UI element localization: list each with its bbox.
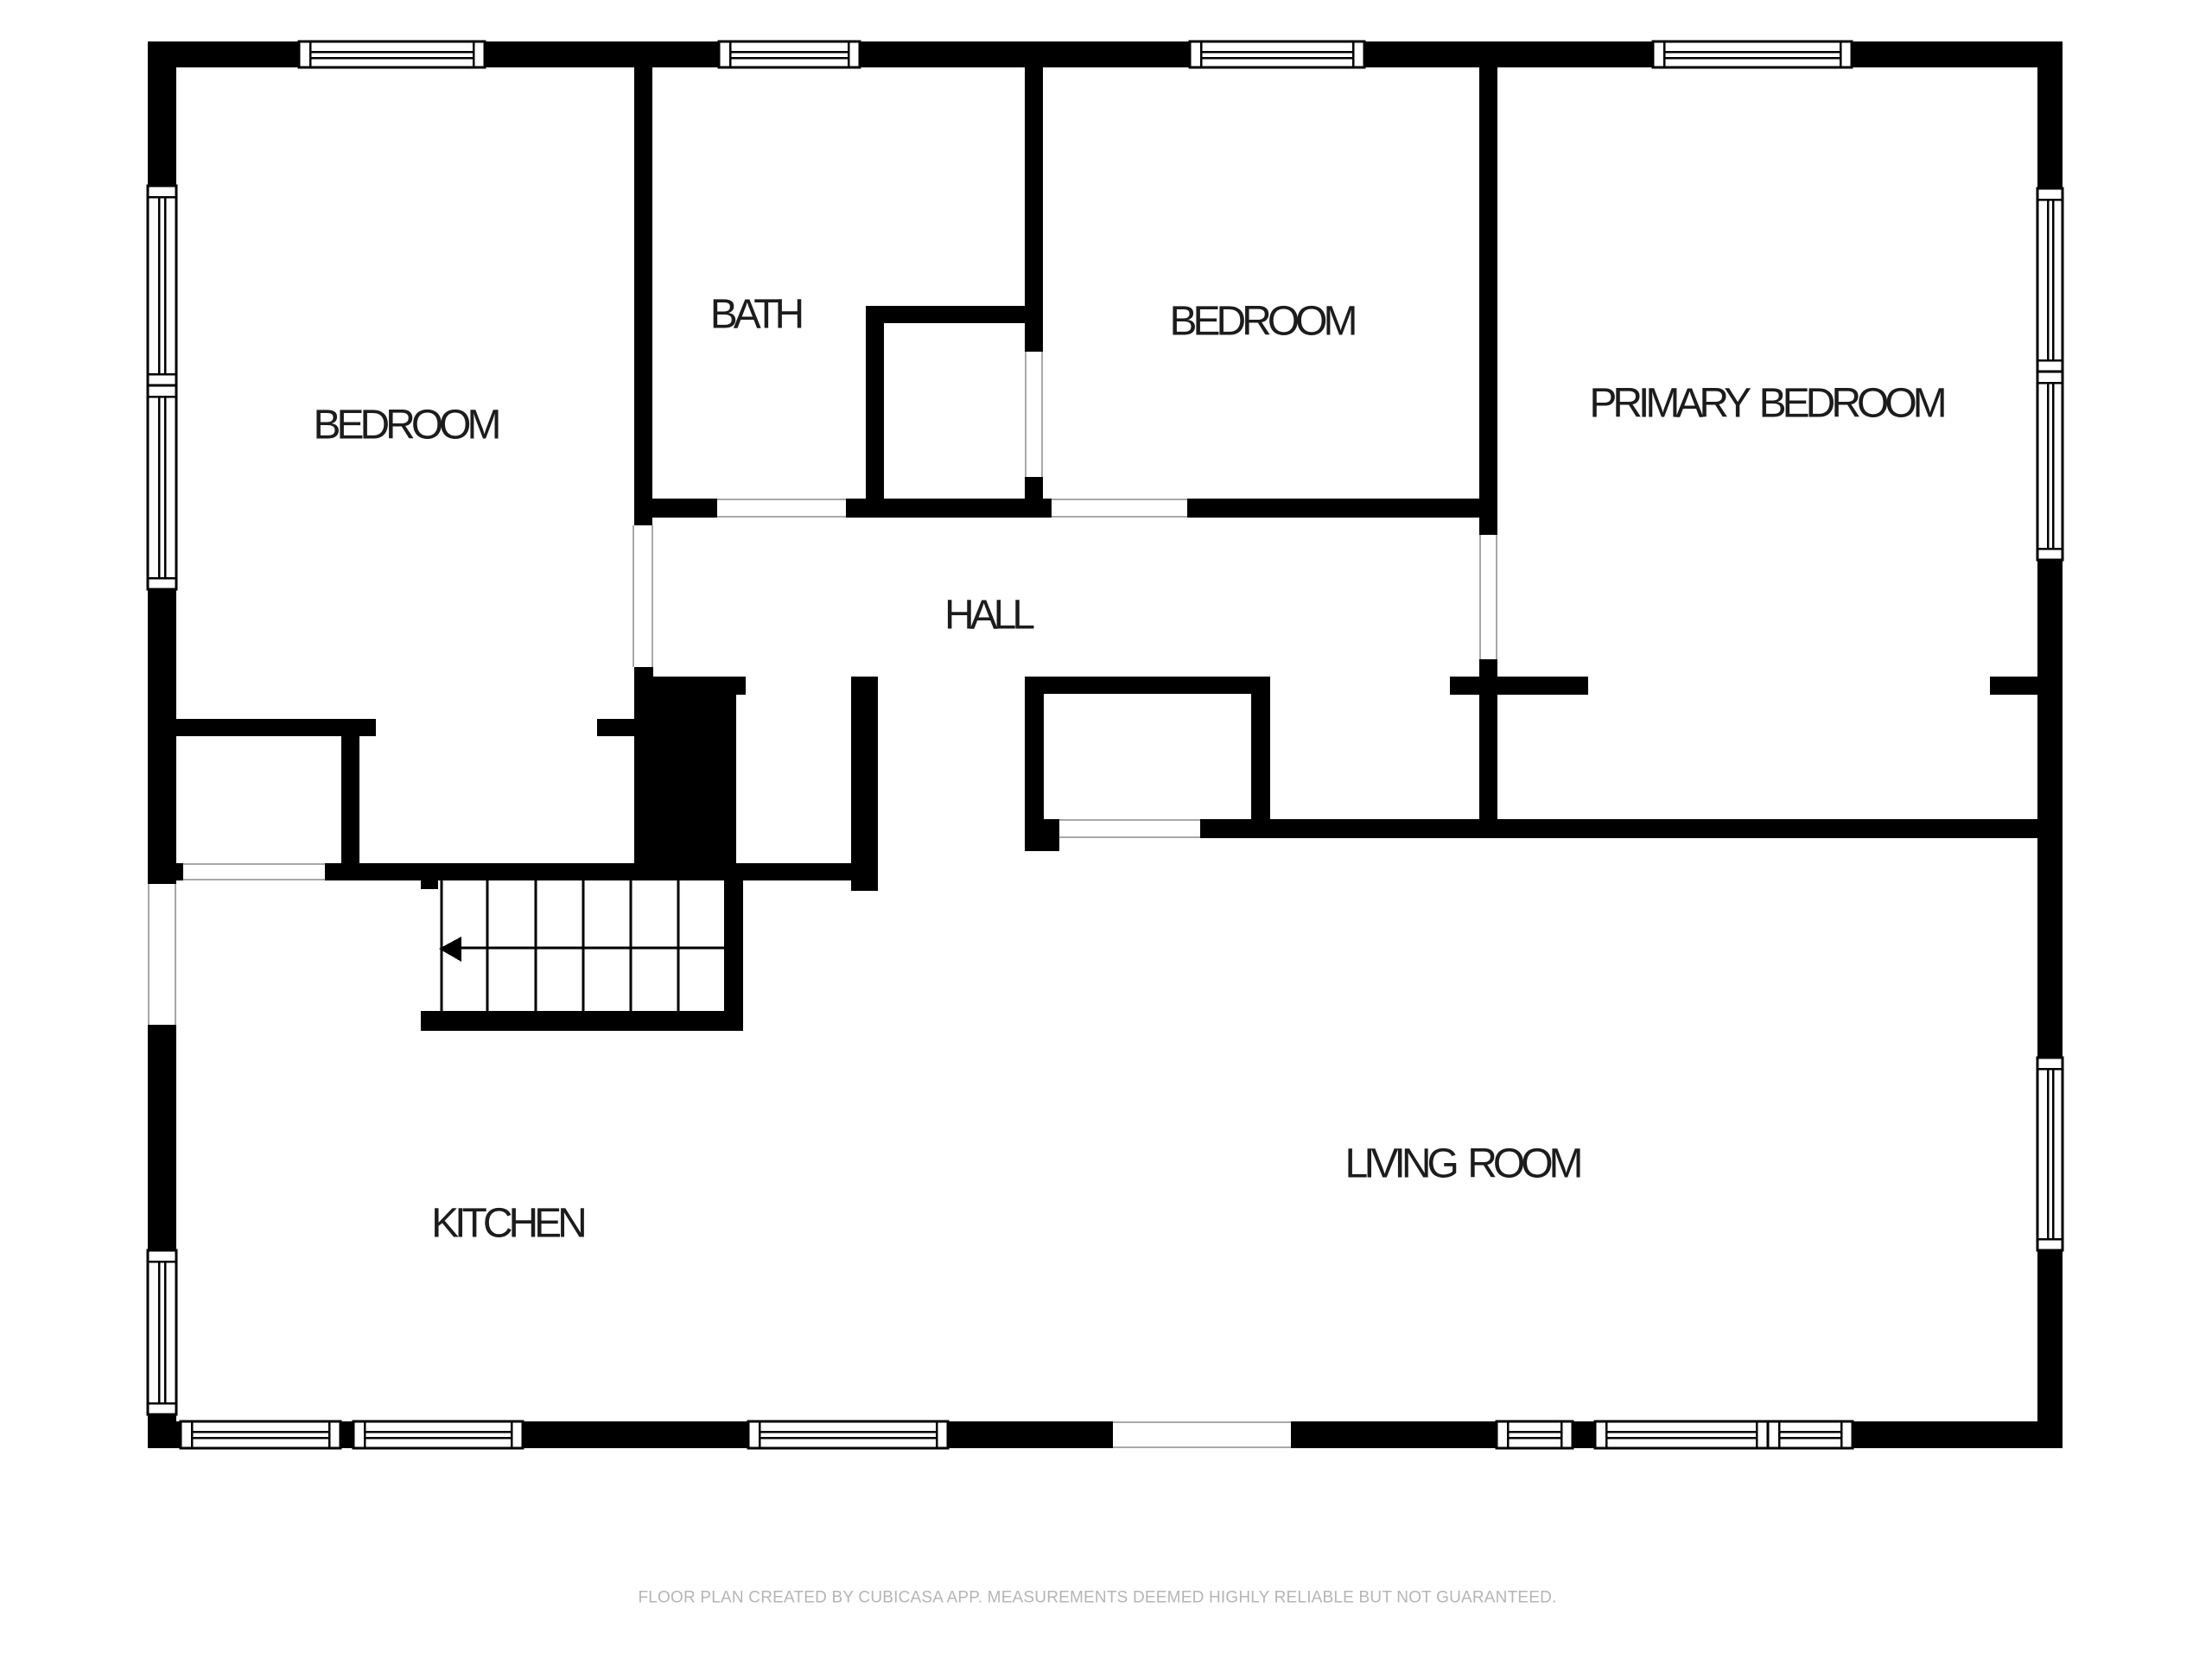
svg-text:BEDROOM: BEDROOM	[313, 403, 499, 448]
svg-text:KITCHEN: KITCHEN	[431, 1201, 584, 1247]
svg-text:LIVING ROOM: LIVING ROOM	[1344, 1141, 1580, 1187]
svg-text:FLOOR PLAN CREATED BY CUBICASA: FLOOR PLAN CREATED BY CUBICASA APP. MEAS…	[638, 1589, 1556, 1607]
svg-text:BEDROOM: BEDROOM	[1169, 299, 1355, 345]
svg-text:PRIMARY BEDROOM: PRIMARY BEDROOM	[1589, 381, 1944, 427]
svg-text:HALL: HALL	[944, 593, 1034, 639]
svg-text:BATH: BATH	[710, 292, 802, 338]
